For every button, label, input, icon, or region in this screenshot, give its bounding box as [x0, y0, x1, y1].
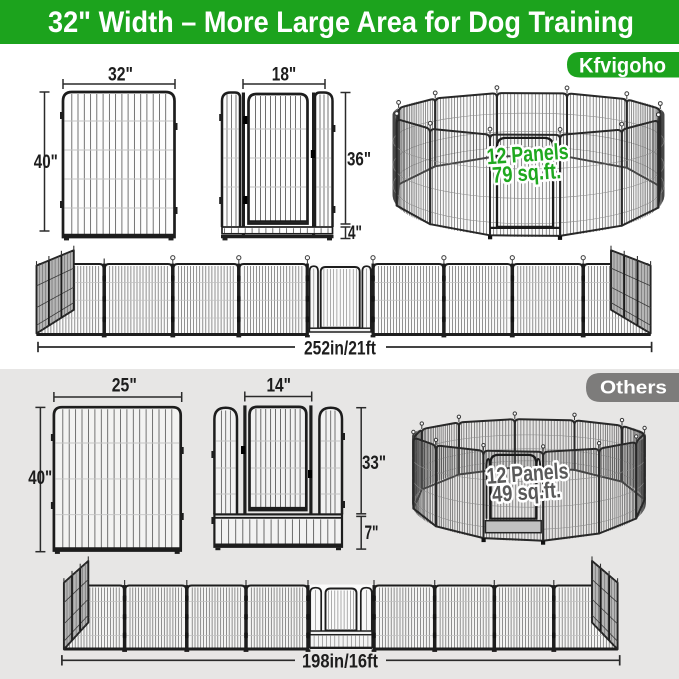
- svg-text:79 sq.ft.: 79 sq.ft.: [491, 158, 562, 188]
- svg-text:Kfvigoho: Kfvigoho: [579, 54, 666, 78]
- svg-text:25": 25": [112, 375, 137, 397]
- svg-text:33": 33": [362, 452, 386, 474]
- svg-text:32": 32": [108, 64, 133, 86]
- svg-text:198in/16ft: 198in/16ft: [302, 652, 379, 673]
- svg-text:36": 36": [347, 149, 371, 171]
- svg-text:40": 40": [28, 467, 52, 489]
- svg-text:14": 14": [266, 375, 291, 397]
- svg-text:40": 40": [34, 151, 58, 173]
- svg-text:32" Width – More Large Area fo: 32" Width – More Large Area for Dog Trai…: [48, 6, 634, 39]
- svg-text:Others: Others: [600, 377, 667, 398]
- svg-text:4": 4": [348, 222, 362, 244]
- svg-text:7": 7": [365, 522, 379, 544]
- svg-text:252in/21ft: 252in/21ft: [304, 339, 377, 360]
- svg-text:18": 18": [272, 64, 297, 86]
- svg-text:49 sq.ft.: 49 sq.ft.: [491, 477, 562, 507]
